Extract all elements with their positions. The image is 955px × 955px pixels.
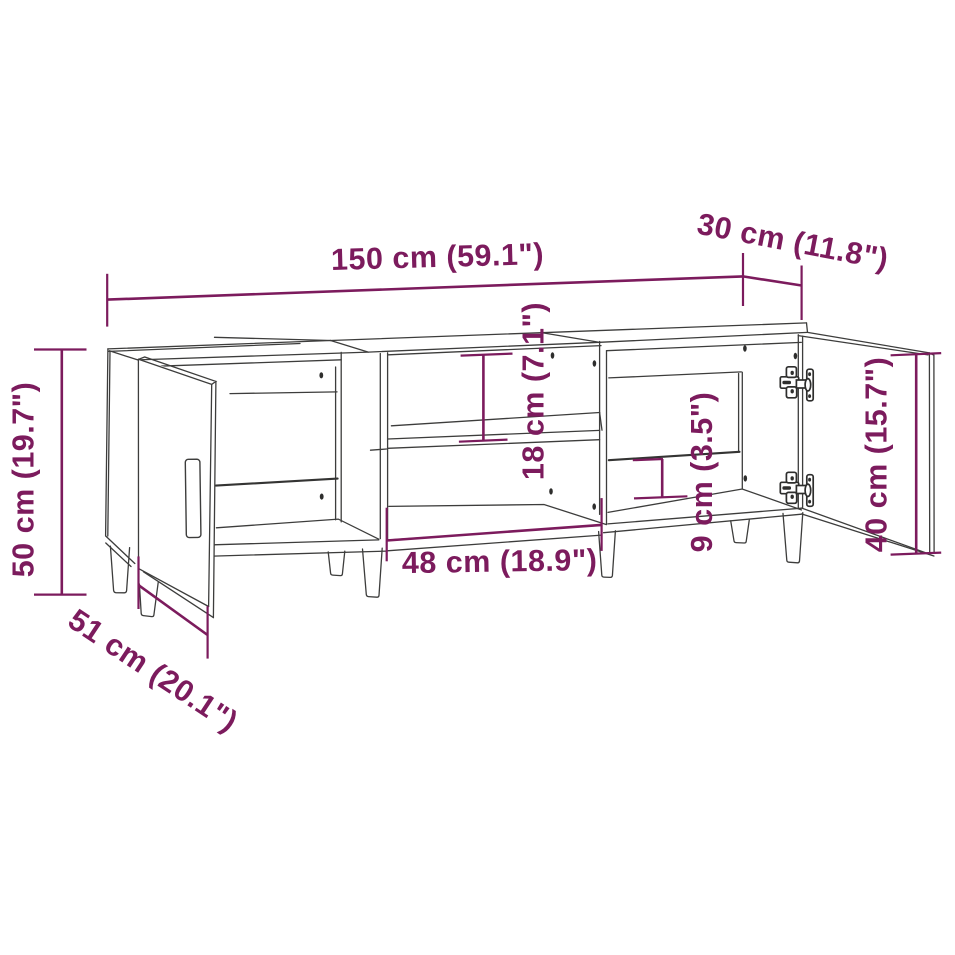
svg-text:9 cm (3.5"): 9 cm (3.5") [685,392,719,553]
svg-text:150 cm (59.1"): 150 cm (59.1") [331,237,545,277]
svg-text:50 cm (19.7"): 50 cm (19.7") [7,382,41,578]
svg-text:48 cm (18.9"): 48 cm (18.9") [402,543,598,580]
svg-text:40 cm (15.7"): 40 cm (15.7") [860,357,894,553]
svg-text:18 cm (7.1"): 18 cm (7.1") [517,302,551,480]
